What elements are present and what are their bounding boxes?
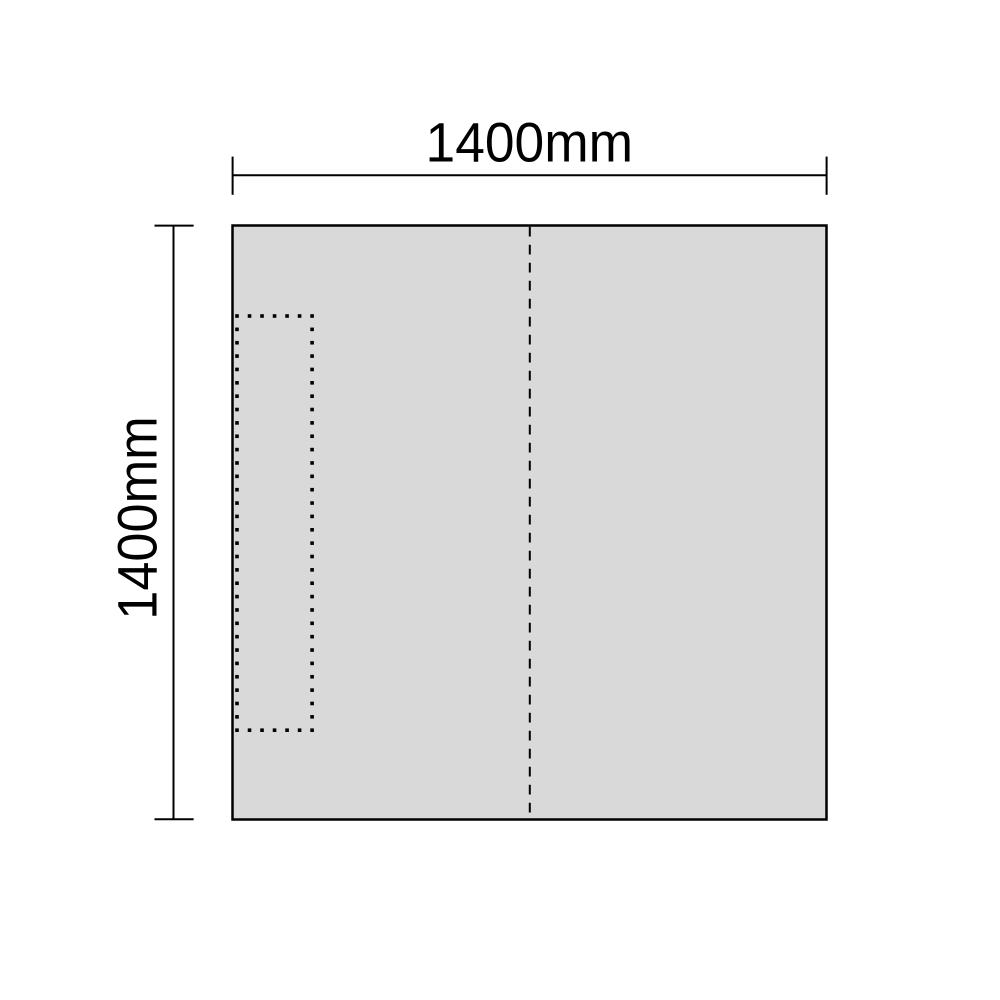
svg-text:1400mm: 1400mm: [426, 112, 634, 174]
svg-text:1400mm: 1400mm: [107, 416, 169, 620]
